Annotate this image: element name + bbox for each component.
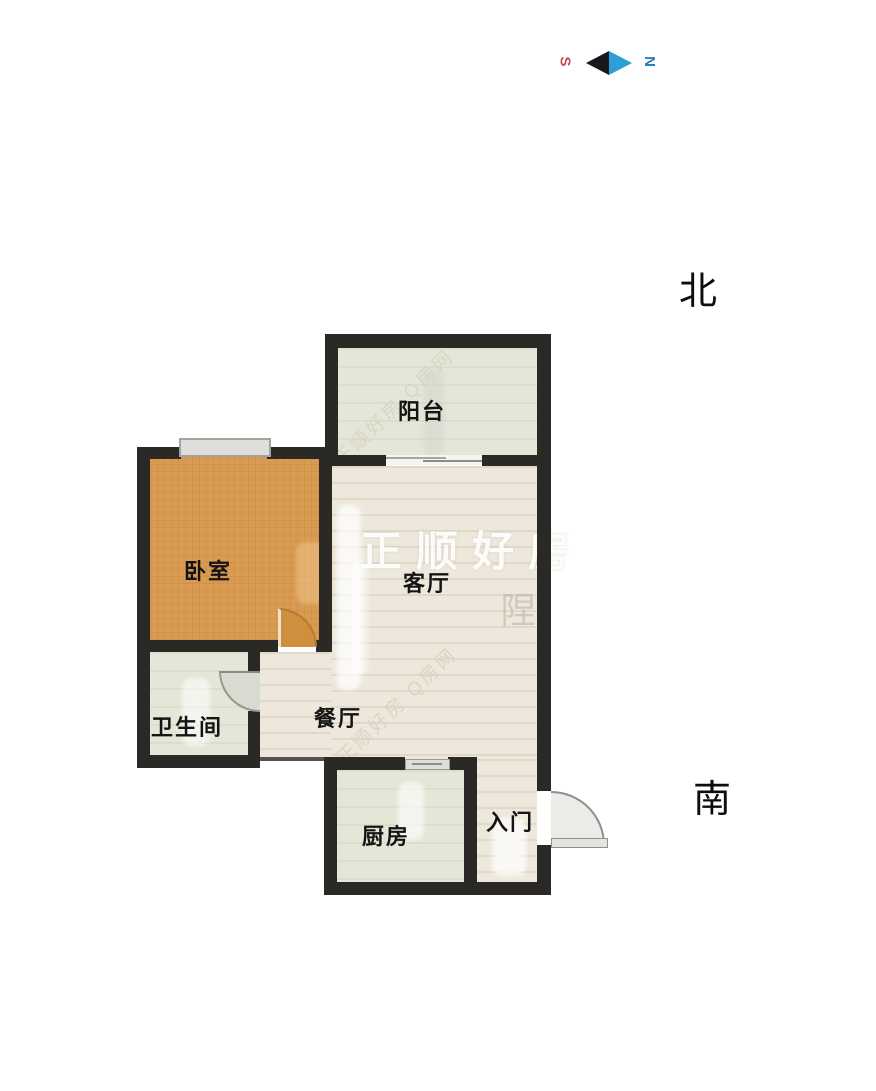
room-label-entry: 入门 xyxy=(486,805,534,837)
wall-bedroom-right xyxy=(319,447,332,642)
south-label: 南 xyxy=(693,768,731,823)
wall-bedroom-bottom-right xyxy=(316,640,332,652)
compass-south-glyph: S xyxy=(557,56,574,66)
room-label-living: 客厅 xyxy=(403,566,451,598)
floor-plan-canvas: S N 北 南 正顺好房 Q房网 正顺好房 Q房网 正顺好房 陧 xyxy=(0,0,876,1091)
room-label-bathroom: 卫生间 xyxy=(151,710,223,742)
compass-north-glyph: N xyxy=(641,56,658,67)
wall-kitchen-right xyxy=(464,757,477,895)
brush-stroke-watermark xyxy=(352,560,367,675)
room-label-kitchen: 厨房 xyxy=(362,819,410,851)
entry-door-swing xyxy=(551,791,605,845)
room-label-balcony: 阳台 xyxy=(398,394,446,426)
wall-right-main xyxy=(537,334,551,791)
room-label-bedroom: 卧室 xyxy=(184,554,232,586)
compass-arrow-east-icon xyxy=(609,51,632,75)
wall-kitchen-left xyxy=(324,757,337,895)
wall-balcony-bottom-left xyxy=(325,455,386,466)
wall-bottom xyxy=(324,882,551,895)
compass-arrow-west-icon xyxy=(586,51,609,75)
wall-balcony-top xyxy=(325,334,548,348)
compass-icon: S N xyxy=(556,46,672,80)
north-label: 北 xyxy=(679,260,717,315)
wall-bathroom-bottom xyxy=(137,755,260,768)
room-label-dining: 餐厅 xyxy=(314,701,362,733)
dining-floor-edge-line xyxy=(260,757,332,761)
balcony-sliding-window xyxy=(386,455,482,465)
wall-left-outer xyxy=(137,447,150,768)
kitchen-window xyxy=(405,759,450,770)
wall-balcony-bottom-right xyxy=(482,455,538,466)
wall-kitchen-top-left xyxy=(324,757,405,770)
bedroom-window xyxy=(179,438,271,457)
wall-bathroom-right-upper xyxy=(248,640,260,671)
entry-door-leaf xyxy=(551,838,608,848)
